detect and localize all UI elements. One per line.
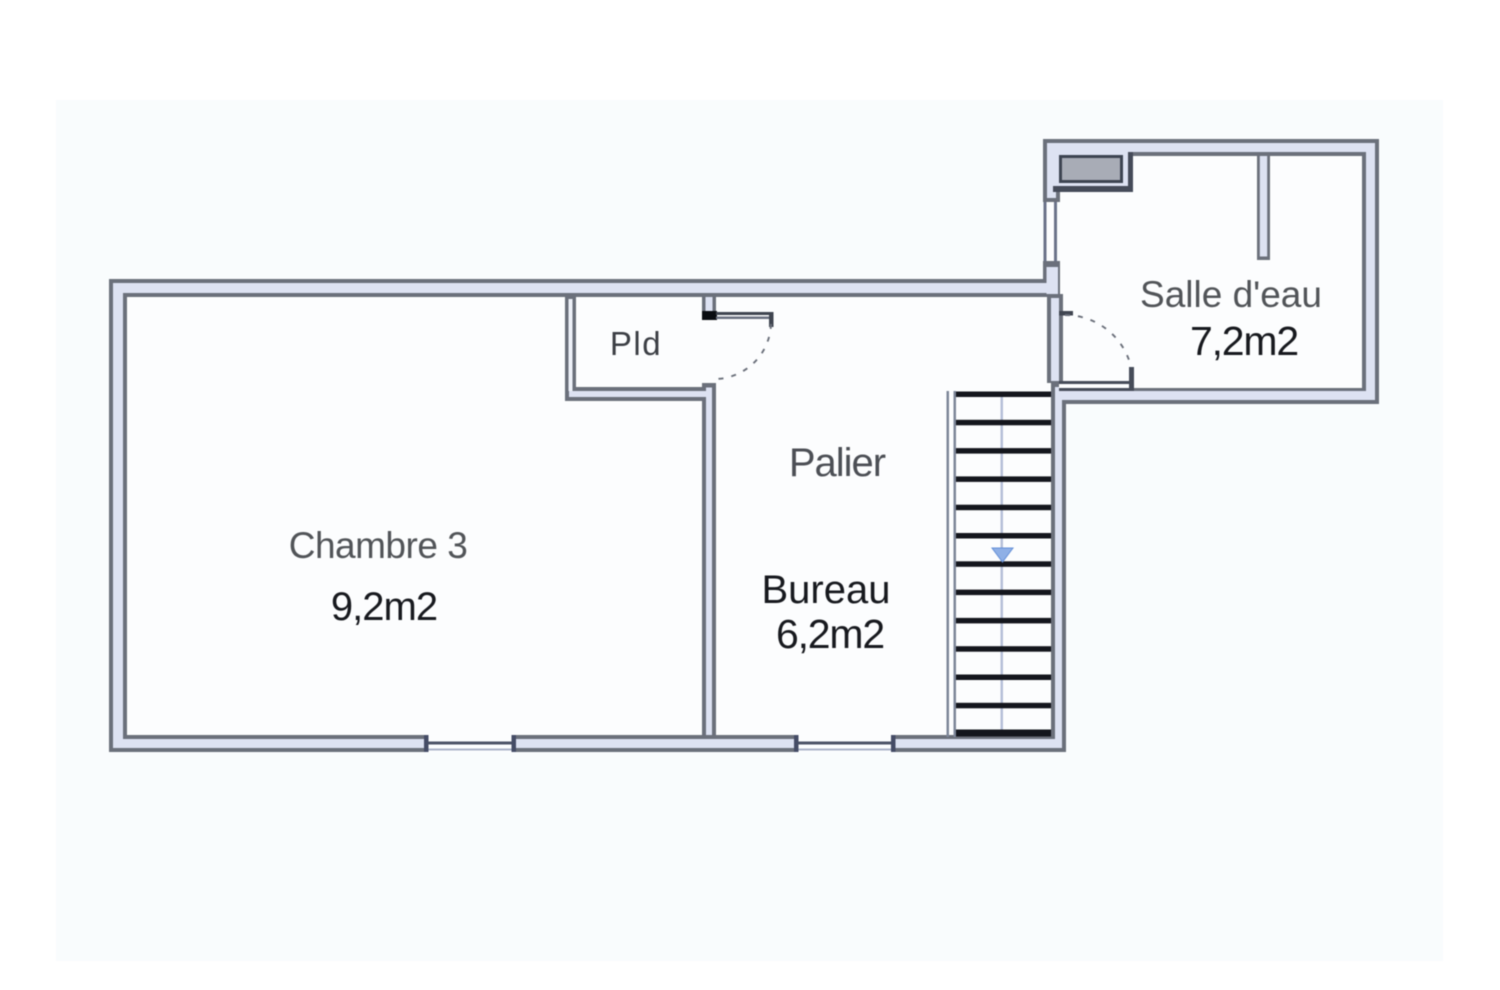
- svg-text:Pld: Pld: [610, 325, 662, 362]
- svg-text:9,2m2: 9,2m2: [331, 585, 437, 629]
- svg-text:6,2m2: 6,2m2: [776, 611, 884, 657]
- svg-text:Bureau: Bureau: [762, 568, 891, 612]
- svg-text:Palier: Palier: [789, 441, 886, 485]
- svg-text:7,2m2: 7,2m2: [1190, 318, 1298, 364]
- svg-text:Salle d'eau: Salle d'eau: [1140, 274, 1322, 315]
- svg-text:Chambre 3: Chambre 3: [289, 525, 468, 566]
